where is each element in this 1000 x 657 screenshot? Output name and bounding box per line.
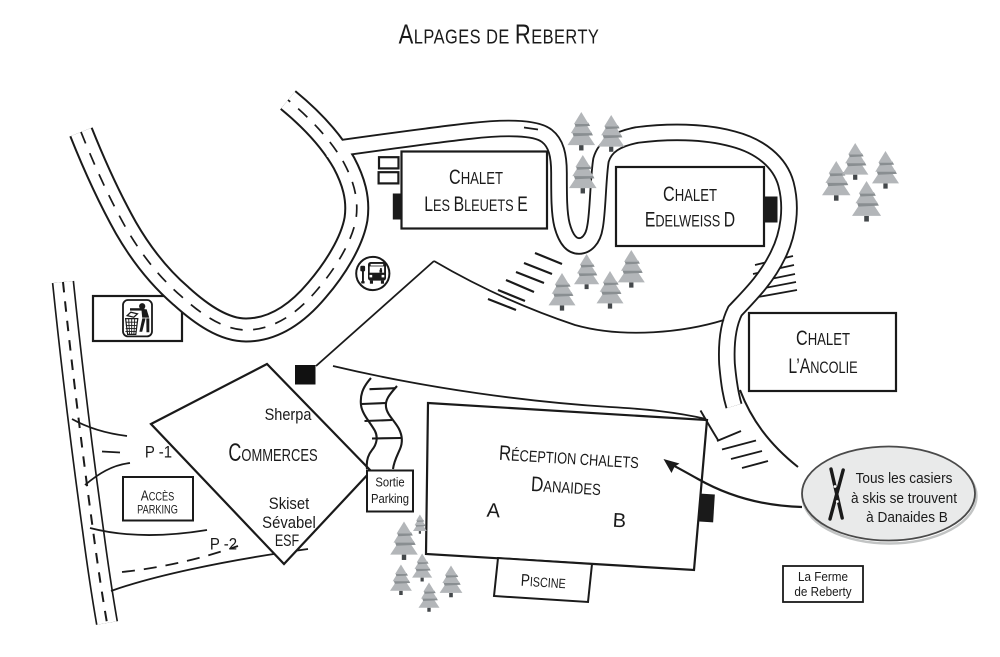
svg-text:Tous les casiers: Tous les casiers <box>856 471 953 488</box>
svg-text:ALPAGES DE REBERTY: ALPAGES DE REBERTY <box>399 19 600 50</box>
svg-text:A: A <box>486 500 501 523</box>
svg-text:CHALET: CHALET <box>796 327 850 351</box>
svg-text:à skis se trouvent: à skis se trouvent <box>851 491 957 508</box>
svg-text:LES BLEUETS E: LES BLEUETS E <box>424 192 527 216</box>
svg-text:de Reberty: de Reberty <box>794 584 852 599</box>
svg-text:ESF: ESF <box>275 532 299 550</box>
svg-text:Sherpa: Sherpa <box>265 406 312 424</box>
svg-text:à Danaides B: à Danaides B <box>866 510 948 527</box>
svg-text:B: B <box>612 510 627 533</box>
svg-text:Sévabel: Sévabel <box>262 514 316 532</box>
svg-text:La Ferme: La Ferme <box>798 569 848 584</box>
svg-text:Skiset: Skiset <box>269 495 310 513</box>
svg-text:CHALET: CHALET <box>663 183 717 207</box>
svg-text:CHALET: CHALET <box>449 166 503 190</box>
svg-text:Sortie: Sortie <box>375 475 405 490</box>
svg-text:P -2: P -2 <box>210 536 237 554</box>
svg-text:L’ANCOLIE: L’ANCOLIE <box>788 354 857 378</box>
svg-text:EDELWEISS D: EDELWEISS D <box>645 207 735 231</box>
svg-text:PARKING: PARKING <box>137 505 178 517</box>
svg-text:P -1: P -1 <box>145 444 172 462</box>
svg-text:Parking: Parking <box>371 491 409 506</box>
